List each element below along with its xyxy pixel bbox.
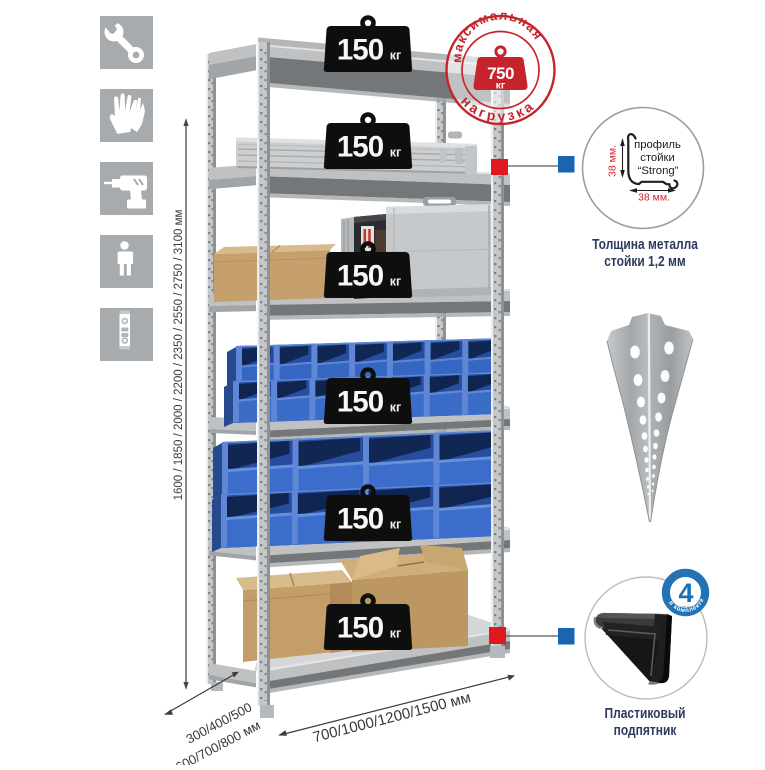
svg-text:профиль: профиль (634, 139, 681, 151)
svg-text:кг: кг (390, 49, 401, 63)
svg-text:кг: кг (390, 275, 401, 289)
svg-text:кг: кг (390, 518, 401, 532)
svg-text:38 мм.: 38 мм. (638, 192, 670, 204)
svg-text:стойки: стойки (640, 152, 675, 164)
svg-text:кг: кг (390, 627, 401, 641)
svg-text:Толщина металла: Толщина металла (592, 236, 698, 253)
svg-text:1600 / 1850 / 2000 / 2200 / 23: 1600 / 1850 / 2000 / 2200 / 2350 / 2550 … (173, 210, 185, 501)
svg-text:150: 150 (337, 34, 384, 67)
svg-text:150: 150 (337, 386, 384, 419)
svg-text:150: 150 (337, 260, 384, 293)
svg-text:Пластиковый: Пластиковый (604, 705, 685, 722)
svg-text:150: 150 (337, 131, 384, 164)
svg-text:“Strong”: “Strong” (638, 165, 679, 177)
svg-text:150: 150 (337, 612, 384, 645)
svg-text:кг: кг (496, 80, 506, 92)
svg-text:кг: кг (390, 146, 401, 160)
svg-text:кг: кг (390, 401, 401, 415)
svg-text:подпятник: подпятник (614, 722, 677, 739)
svg-text:стойки 1,2 мм: стойки 1,2 мм (604, 253, 686, 270)
svg-text:150: 150 (337, 503, 384, 536)
svg-text:4: 4 (678, 578, 693, 608)
svg-text:38 мм.: 38 мм. (607, 145, 619, 177)
